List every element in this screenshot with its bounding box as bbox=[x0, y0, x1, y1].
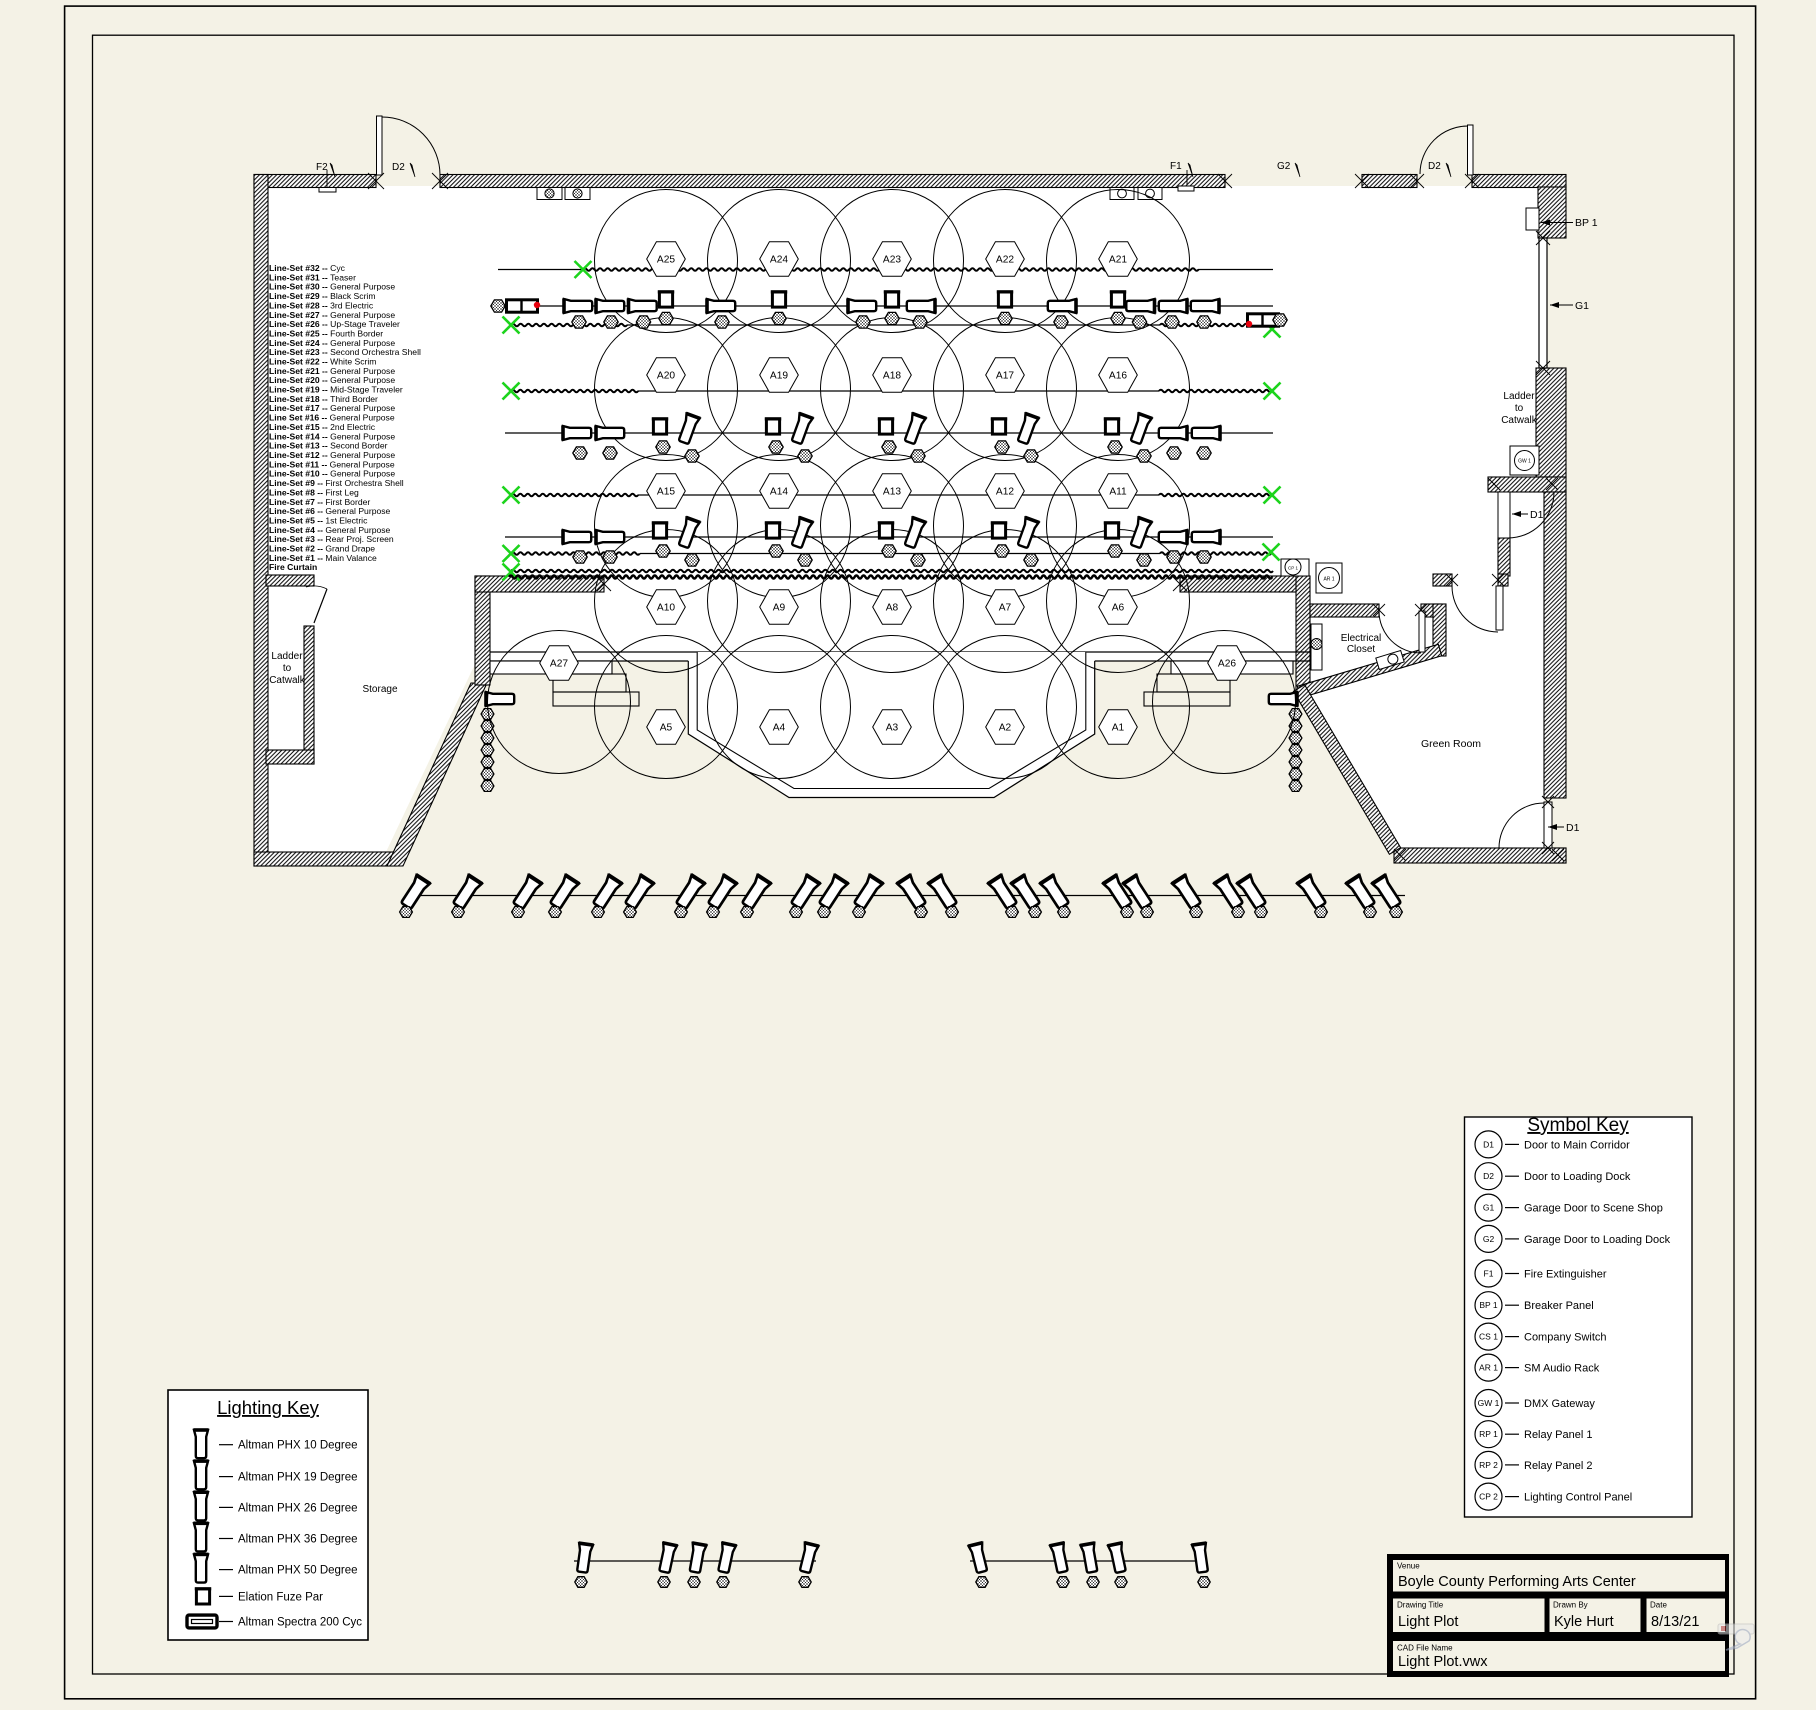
svg-text:D1: D1 bbox=[1566, 822, 1580, 834]
svg-text:RP 1: RP 1 bbox=[1479, 1429, 1498, 1439]
svg-text:SM Audio Rack: SM Audio Rack bbox=[1524, 1363, 1600, 1375]
svg-text:D2: D2 bbox=[1428, 161, 1441, 172]
svg-text:Green Room: Green Room bbox=[1421, 738, 1481, 750]
svg-text:A7: A7 bbox=[999, 602, 1012, 613]
svg-text:RP 2: RP 2 bbox=[1479, 1460, 1498, 1470]
svg-text:GW 1: GW 1 bbox=[1478, 1398, 1500, 1408]
svg-text:D1: D1 bbox=[1483, 1139, 1494, 1149]
svg-text:to: to bbox=[1515, 403, 1524, 414]
svg-text:DMX Gateway: DMX Gateway bbox=[1524, 1398, 1595, 1410]
svg-text:Altman PHX 19 Degree: Altman PHX 19 Degree bbox=[238, 1472, 358, 1484]
svg-text:Fire Extinguisher: Fire Extinguisher bbox=[1524, 1269, 1607, 1281]
svg-text:A12: A12 bbox=[996, 486, 1014, 497]
svg-text:Light Plot.vwx: Light Plot.vwx bbox=[1398, 1654, 1488, 1670]
svg-text:CP 2: CP 2 bbox=[1479, 1492, 1498, 1502]
svg-text:A19: A19 bbox=[770, 370, 788, 381]
svg-text:Breaker Panel: Breaker Panel bbox=[1524, 1300, 1594, 1312]
svg-text:Altman PHX 10 Degree: Altman PHX 10 Degree bbox=[238, 1440, 358, 1452]
svg-text:G1: G1 bbox=[1575, 300, 1589, 312]
svg-text:A2: A2 bbox=[999, 722, 1012, 733]
svg-text:Ladder: Ladder bbox=[1503, 391, 1535, 402]
svg-text:Altman Spectra 200 Cyc: Altman Spectra 200 Cyc bbox=[238, 1617, 362, 1629]
svg-text:A1: A1 bbox=[1112, 722, 1125, 733]
svg-text:Relay Panel 2: Relay Panel 2 bbox=[1524, 1460, 1593, 1472]
svg-text:Storage: Storage bbox=[362, 684, 397, 695]
svg-text:Altman PHX 36 Degree: Altman PHX 36 Degree bbox=[238, 1534, 358, 1546]
svg-text:CS 1: CS 1 bbox=[1479, 1332, 1498, 1342]
svg-text:Elation Fuze Par: Elation Fuze Par bbox=[238, 1591, 323, 1603]
svg-text:BP 1: BP 1 bbox=[1479, 1300, 1498, 1310]
svg-text:F1: F1 bbox=[1484, 1269, 1494, 1279]
svg-text:Catwalk: Catwalk bbox=[1501, 415, 1538, 426]
svg-text:CP 1: CP 1 bbox=[1288, 566, 1298, 571]
svg-text:A20: A20 bbox=[657, 370, 675, 381]
svg-text:Company Switch: Company Switch bbox=[1524, 1332, 1607, 1344]
svg-text:Symbol Key: Symbol Key bbox=[1527, 1115, 1629, 1136]
svg-text:A18: A18 bbox=[883, 370, 901, 381]
svg-text:Altman PHX 50 Degree: Altman PHX 50 Degree bbox=[238, 1565, 358, 1577]
svg-text:AR 1: AR 1 bbox=[1479, 1363, 1498, 1373]
svg-text:8/13/21: 8/13/21 bbox=[1651, 1614, 1699, 1630]
svg-text:Garage Door to Loading Dock: Garage Door to Loading Dock bbox=[1524, 1234, 1671, 1246]
svg-text:Door to Loading Dock: Door to Loading Dock bbox=[1524, 1171, 1631, 1183]
svg-text:A16: A16 bbox=[1109, 370, 1127, 381]
svg-text:A24: A24 bbox=[770, 254, 788, 265]
svg-text:A23: A23 bbox=[883, 254, 901, 265]
svg-text:A14: A14 bbox=[770, 486, 788, 497]
svg-text:BP 1: BP 1 bbox=[1575, 217, 1598, 229]
svg-text:A26: A26 bbox=[1218, 658, 1236, 669]
svg-text:Venue: Venue bbox=[1397, 1562, 1420, 1571]
svg-text:G2: G2 bbox=[1483, 1234, 1495, 1244]
svg-text:Drawing Title: Drawing Title bbox=[1397, 1601, 1444, 1610]
svg-text:F1: F1 bbox=[1170, 161, 1182, 172]
svg-text:to: to bbox=[283, 663, 292, 674]
svg-text:A10: A10 bbox=[657, 602, 675, 613]
svg-text:Boyle County Performing Arts C: Boyle County Performing Arts Center bbox=[1398, 1574, 1636, 1590]
svg-text:CAD File Name: CAD File Name bbox=[1397, 1644, 1453, 1653]
svg-text:Catwalk: Catwalk bbox=[269, 675, 306, 686]
svg-text:Ladder: Ladder bbox=[271, 651, 303, 662]
svg-text:Light Plot: Light Plot bbox=[1398, 1614, 1458, 1630]
svg-text:Altman PHX 26 Degree: Altman PHX 26 Degree bbox=[238, 1502, 358, 1514]
svg-text:Relay Panel 1: Relay Panel 1 bbox=[1524, 1429, 1593, 1441]
svg-text:A3: A3 bbox=[886, 722, 899, 733]
svg-text:A5: A5 bbox=[660, 722, 673, 733]
svg-text:A22: A22 bbox=[996, 254, 1014, 265]
svg-text:Door to Main Corridor: Door to Main Corridor bbox=[1524, 1139, 1630, 1151]
svg-text:A21: A21 bbox=[1109, 254, 1127, 265]
svg-text:A25: A25 bbox=[657, 254, 675, 265]
svg-text:Garage Door to Scene Shop: Garage Door to Scene Shop bbox=[1524, 1203, 1663, 1215]
svg-text:GW 1: GW 1 bbox=[1518, 459, 1531, 465]
svg-text:A6: A6 bbox=[1112, 602, 1125, 613]
svg-text:A13: A13 bbox=[883, 486, 901, 497]
svg-text:D2: D2 bbox=[1483, 1171, 1494, 1181]
svg-text:Date: Date bbox=[1650, 1601, 1667, 1610]
svg-text:AR 1: AR 1 bbox=[1323, 577, 1334, 583]
svg-text:A17: A17 bbox=[996, 370, 1014, 381]
svg-text:Closet: Closet bbox=[1347, 644, 1376, 655]
svg-text:A9: A9 bbox=[773, 602, 786, 613]
svg-text:Kyle Hurt: Kyle Hurt bbox=[1554, 1614, 1614, 1630]
svg-text:G1: G1 bbox=[1483, 1203, 1495, 1213]
svg-text:F2: F2 bbox=[316, 162, 328, 173]
svg-text:A15: A15 bbox=[657, 486, 675, 497]
svg-text:A11: A11 bbox=[1109, 486, 1127, 497]
svg-text:Lighting Key: Lighting Key bbox=[217, 1397, 320, 1418]
svg-text:D1: D1 bbox=[1530, 509, 1544, 521]
svg-text:D2: D2 bbox=[392, 162, 405, 173]
svg-text:Lighting Control Panel: Lighting Control Panel bbox=[1524, 1492, 1632, 1504]
svg-text:G2: G2 bbox=[1277, 161, 1291, 172]
svg-text:Fire Curtain: Fire Curtain bbox=[269, 562, 317, 572]
svg-text:Drawn By: Drawn By bbox=[1553, 1601, 1588, 1610]
svg-text:A8: A8 bbox=[886, 602, 899, 613]
svg-text:Electrical: Electrical bbox=[1341, 633, 1382, 644]
svg-text:A4: A4 bbox=[773, 722, 786, 733]
svg-text:A27: A27 bbox=[550, 658, 568, 669]
